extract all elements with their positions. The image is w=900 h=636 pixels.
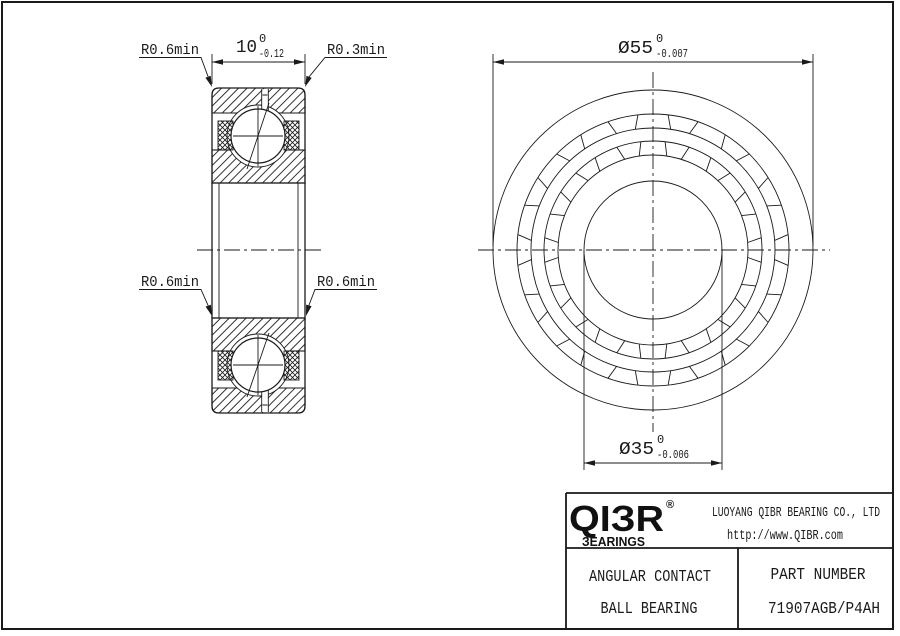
leader-label: R0.6min	[317, 274, 375, 291]
part-number-value: 71907AGB/P4AH	[768, 600, 880, 619]
leader-arrow	[205, 76, 214, 88]
bottom-cross-section	[212, 318, 305, 413]
dim-arrow-left	[584, 460, 595, 466]
leader-label: R0.6min	[141, 42, 199, 59]
cage-right	[284, 121, 299, 150]
od-dim-tol-lower: -0.007	[656, 47, 688, 61]
bore-dim-value: Ø35	[619, 440, 654, 460]
od-dim-tol-upper: 0	[656, 32, 663, 46]
drawing-canvas: 10 0 -0.12 R0.6min R0.3min R0.6min R0.6m…	[0, 0, 900, 636]
product-type-line2: BALL BEARING	[601, 600, 698, 619]
leader-arrow	[302, 76, 311, 88]
logo-text: QIЗR	[569, 498, 664, 539]
company-name: LUOYANG QIBR BEARING CO., LTD	[712, 505, 880, 521]
width-dim-tol-upper: 0	[259, 32, 266, 46]
front-view: Ø55 0 -0.007 Ø35 0 -0.006	[478, 32, 830, 470]
top-cross-section	[212, 88, 305, 183]
bore-dim-tol-lower: -0.006	[657, 448, 689, 462]
leader-mid-left: R0.6min	[139, 274, 215, 317]
dim-arrow-right	[711, 460, 722, 466]
leader-mid-right: R0.6min	[303, 274, 377, 317]
cross-section-view: 10 0 -0.12 R0.6min R0.3min R0.6min R0.6m…	[139, 32, 387, 413]
dim-arrow-left	[493, 59, 504, 65]
bore-dim-tol-upper: 0	[657, 433, 664, 447]
dim-arrow-right	[294, 59, 305, 65]
leader-top-right: R0.3min	[302, 42, 387, 88]
od-dim-value: Ø55	[618, 39, 653, 59]
leader-top-left: R0.6min	[139, 42, 215, 88]
company-website: http://www.QIBR.com	[727, 528, 843, 544]
dim-arrow-right	[802, 59, 813, 65]
drawing-page: 10 0 -0.12 R0.6min R0.3min R0.6min R0.6m…	[0, 0, 900, 636]
cage-right	[284, 351, 299, 380]
leader-label: R0.3min	[327, 42, 385, 59]
od-silhouette-lines	[212, 183, 305, 318]
width-dim-tol-lower: -0.12	[259, 47, 284, 61]
width-dim-value: 10	[236, 38, 257, 58]
outer-ring-groove	[262, 390, 269, 412]
title-block: QIЗR ® ЗEARINGS LUOYANG QIBR BEARING CO.…	[566, 493, 893, 629]
bore-lines	[219, 183, 298, 318]
leader-arrow	[206, 305, 215, 317]
brand-logo: QIЗR ® ЗEARINGS	[569, 498, 674, 549]
registered-mark-icon: ®	[666, 499, 674, 511]
leader-label: R0.6min	[141, 274, 199, 291]
part-number-label: PART NUMBER	[771, 566, 866, 585]
width-dimension: 10 0 -0.12	[212, 32, 305, 84]
dim-arrow-left	[212, 59, 223, 65]
product-type-line1: ANGULAR CONTACT	[589, 568, 711, 587]
logo-subtext: ЗEARINGS	[582, 534, 645, 549]
